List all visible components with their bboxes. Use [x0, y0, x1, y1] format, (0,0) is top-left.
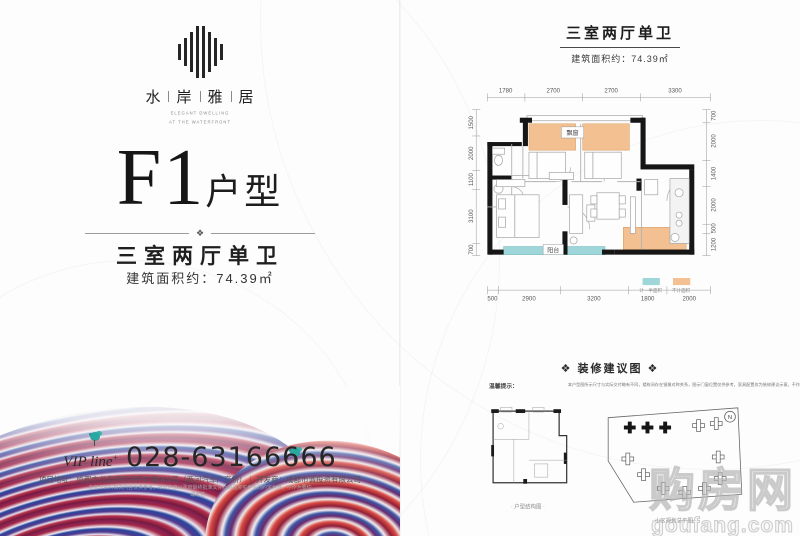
svg-text:2000: 2000 [711, 134, 718, 148]
floor-plan-svg: 1780 2700 2700 3300 500 2900 3200 1800 2… [462, 80, 744, 338]
highlighted-buildings [624, 422, 671, 434]
brochure-poster: 水 岸 雅 居 ELEGANT DWELLING AT THE WATERFRO… [0, 0, 800, 536]
svg-text:1100: 1100 [468, 172, 475, 186]
watermark-en: goufang.com [649, 515, 796, 536]
mini-left-caption: · 户型结构图 · [476, 498, 580, 516]
svg-text:计一半面积: 计一半面积 [639, 287, 662, 294]
svg-text:2700: 2700 [604, 87, 618, 94]
svg-text:2000: 2000 [468, 146, 475, 160]
logo-name: 水 岸 雅 居 [0, 86, 400, 107]
site-watermark: 购房网 goufang.com [649, 467, 796, 536]
notice-line: 温馨提示：本户型图所示尺寸与实际交付略有不同，楼栋间存在镜像对称关系，图示门窗位… [414, 377, 794, 395]
svg-text:1200: 1200 [711, 237, 718, 251]
svg-text:飘窗: 飘窗 [566, 129, 578, 137]
layout-title: 三室两厅单卫 [0, 240, 400, 270]
unit-suffix: 户型 [205, 171, 283, 212]
vip-sup: + [113, 453, 118, 462]
north-label: N [728, 415, 732, 421]
svg-text:2700: 2700 [547, 87, 561, 94]
ornament-divider: ❖ [85, 228, 315, 238]
svg-text:500: 500 [487, 295, 498, 302]
left-page: 水 岸 雅 居 ELEGANT DWELLING AT THE WATERFRO… [0, 0, 400, 536]
vip-label: VIP line+ [63, 453, 118, 471]
svg-text:不计面积: 不计面积 [672, 287, 691, 294]
divider-ornament-icon: ❖ [189, 228, 211, 239]
svg-text:700: 700 [711, 110, 718, 121]
svg-text:1800: 1800 [641, 295, 655, 302]
logo-char: 居 [239, 86, 255, 107]
floor-plan: 1780 2700 2700 3300 500 2900 3200 1800 2… [462, 80, 744, 338]
logo-subtitle: ELEGANT DWELLING AT THE WATERFRONT [0, 111, 400, 129]
svg-text:阳台: 阳台 [547, 247, 559, 255]
notice-label: 温馨提示： [489, 383, 518, 389]
svg-text:1780: 1780 [499, 87, 513, 94]
watermark-cn: 购房网 [649, 467, 796, 513]
svg-text:2000: 2000 [711, 198, 718, 212]
plan-header-area: 建筑面积约：74.39㎡ [550, 52, 690, 65]
plan-header-title: 三室两厅单卫 [560, 22, 680, 48]
svg-text:3200: 3200 [587, 295, 601, 302]
right-page: 三室两厅单卫 建筑面积约：74.39㎡ 1780 2700 2700 3300 [400, 0, 800, 536]
unit-name: F1 [117, 134, 206, 222]
logo-char: 水 [145, 86, 161, 107]
notice-text: 本户型图所示尺寸与实际交付略有不同，楼栋间存在镜像对称关系，图示门窗位置仅供参考… [568, 382, 800, 388]
tree-icon [90, 432, 100, 441]
svg-text:2900: 2900 [522, 295, 536, 302]
logo-separator [200, 91, 201, 102]
brand-logo: 水 岸 雅 居 ELEGANT DWELLING AT THE WATERFRO… [0, 24, 400, 129]
phone-number: 028-63166666 [126, 442, 337, 473]
building-bars-icon [162, 24, 238, 80]
logo-char: 岸 [176, 86, 192, 107]
plan-header: 三室两厅单卫 建筑面积约：74.39㎡ [550, 22, 690, 65]
logo-separator [168, 91, 169, 102]
svg-text:700: 700 [468, 244, 475, 255]
mini-structure-plan [476, 396, 580, 501]
svg-text:3100: 3100 [468, 209, 475, 223]
suggestion-heading: ❖ 装修建议图 ❖ [460, 360, 760, 376]
logo-separator [231, 91, 232, 102]
area-text: 建筑面积约：74.39㎡ [0, 268, 400, 287]
svg-text:2000: 2000 [682, 295, 696, 302]
logo-char: 雅 [208, 86, 224, 107]
vip-hotline: VIP line+ 028-63166666 [0, 442, 400, 473]
area-legend: 计一半面积 不计面积 [639, 278, 690, 294]
disclaimer: 本宣传资料相关内容仅供参考，所有信息以政府最终批准文件及商品房买卖合同约定为准，… [20, 484, 380, 508]
unit-title: F1户型 [0, 138, 400, 218]
svg-text:1400: 1400 [711, 166, 718, 180]
svg-text:3300: 3300 [668, 87, 682, 94]
svg-text:500: 500 [711, 223, 718, 234]
svg-text:1500: 1500 [468, 115, 475, 129]
